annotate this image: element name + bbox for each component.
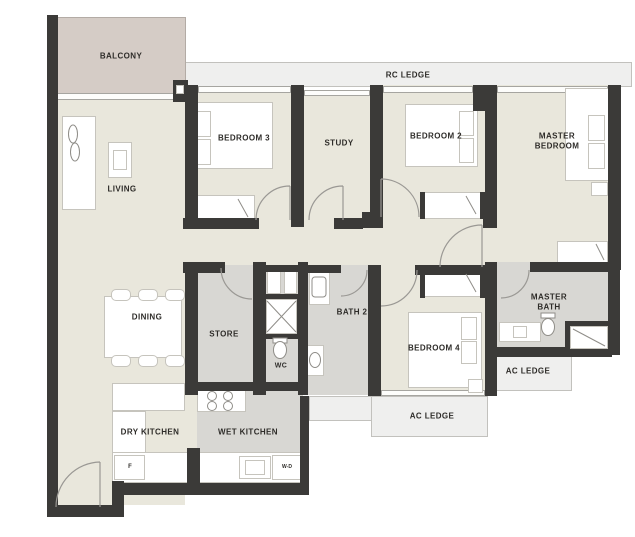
bath2-vanity	[309, 272, 330, 305]
balcony-label: BALCONY	[100, 52, 142, 61]
master-bed-pillow	[588, 115, 605, 141]
wall-segment	[415, 265, 487, 275]
dining-table	[104, 296, 182, 358]
wall-segment	[480, 192, 485, 219]
store-label: STORE	[209, 330, 238, 339]
ac-ledge-bottom-label: AC LEDGE	[410, 412, 455, 421]
study-label: STUDY	[324, 139, 353, 148]
wall-segment	[187, 448, 200, 486]
wall-segment	[47, 15, 58, 512]
wall-segment	[185, 382, 308, 391]
balcony-column-cap	[176, 85, 184, 94]
dining-chair	[138, 355, 158, 367]
bedroom3-label: BEDROOM 3	[218, 134, 270, 143]
bath2-toilet-unit	[307, 345, 324, 376]
basin-unit	[284, 271, 297, 294]
master-shower	[570, 326, 608, 349]
study-window	[304, 90, 370, 96]
wall-segment	[298, 262, 308, 395]
bedroom2-wardrobe	[424, 192, 481, 219]
wall-segment	[185, 265, 198, 395]
wall-segment	[473, 85, 497, 111]
wall-segment	[420, 268, 425, 298]
wall-segment	[185, 92, 198, 225]
wall-segment	[334, 218, 363, 229]
dining-label: DINING	[132, 313, 162, 322]
bedroom2-window	[383, 86, 473, 93]
master-bedroom-label: MASTER BEDROOM	[525, 132, 589, 153]
wall-segment	[370, 85, 383, 227]
bedroom3-window	[198, 86, 291, 93]
wall-segment	[183, 262, 225, 273]
wc-label: WC	[275, 363, 287, 370]
sofa	[62, 116, 96, 210]
living-label: LIVING	[107, 185, 136, 194]
master-bath-basin	[513, 326, 527, 338]
dining-chair	[165, 355, 185, 367]
dining-chair	[111, 289, 131, 301]
kitchen-sink-basin	[245, 460, 265, 475]
living-balcony-window	[57, 93, 175, 100]
fridge-label: F	[128, 464, 132, 470]
bedroom4-label: BEDROOM 4	[408, 344, 460, 353]
bedroom2-pillow	[459, 138, 474, 163]
wall-segment	[253, 262, 266, 395]
wall-segment	[530, 262, 610, 272]
bedroom4-pillow	[461, 341, 477, 364]
coffee-table-inner	[113, 150, 127, 170]
wall-segment	[420, 192, 425, 219]
ac-ledge-right-label: AC LEDGE	[506, 367, 551, 376]
wall-segment	[485, 262, 497, 396]
wall-segment	[308, 265, 341, 273]
wall-segment	[112, 483, 309, 495]
master-bedside-table	[591, 182, 608, 196]
wall-segment	[362, 212, 383, 228]
wall-segment	[255, 265, 300, 272]
bedroom2-label: BEDROOM 2	[410, 132, 462, 141]
wall-segment	[300, 396, 309, 495]
dining-chair	[138, 289, 158, 301]
bath2-label: BATH 2	[337, 308, 368, 317]
ac-ledge-bottom-area-left	[309, 396, 373, 421]
wall-segment	[480, 268, 485, 298]
dry-kitchen-counter	[112, 383, 185, 411]
wall-segment	[608, 85, 621, 270]
master-bath-label: MASTER BATH	[523, 293, 575, 314]
wall-segment	[483, 207, 497, 228]
master-bed-pillow	[588, 143, 605, 169]
bedroom4-ac-unit	[468, 379, 483, 393]
dry-kitchen-label: DRY KITCHEN	[121, 428, 180, 437]
wet-kitchen-label: WET KITCHEN	[218, 428, 278, 437]
rc-ledge-label: RC LEDGE	[386, 71, 431, 80]
washer-dryer-label: W-D	[282, 464, 292, 470]
bedroom4-pillow	[461, 317, 477, 340]
water-heater	[267, 271, 281, 294]
wall-segment	[608, 270, 620, 355]
wall-segment	[368, 265, 381, 396]
dining-chair	[165, 289, 185, 301]
wall-segment	[291, 85, 304, 227]
bath2-shower	[266, 299, 297, 334]
corridor-floor	[185, 222, 497, 270]
floor-plan: BALCONY LIVING BEDROOM 3 STUDY BEDROOM 2…	[0, 0, 635, 537]
dining-chair	[111, 355, 131, 367]
wall-segment	[183, 218, 259, 229]
